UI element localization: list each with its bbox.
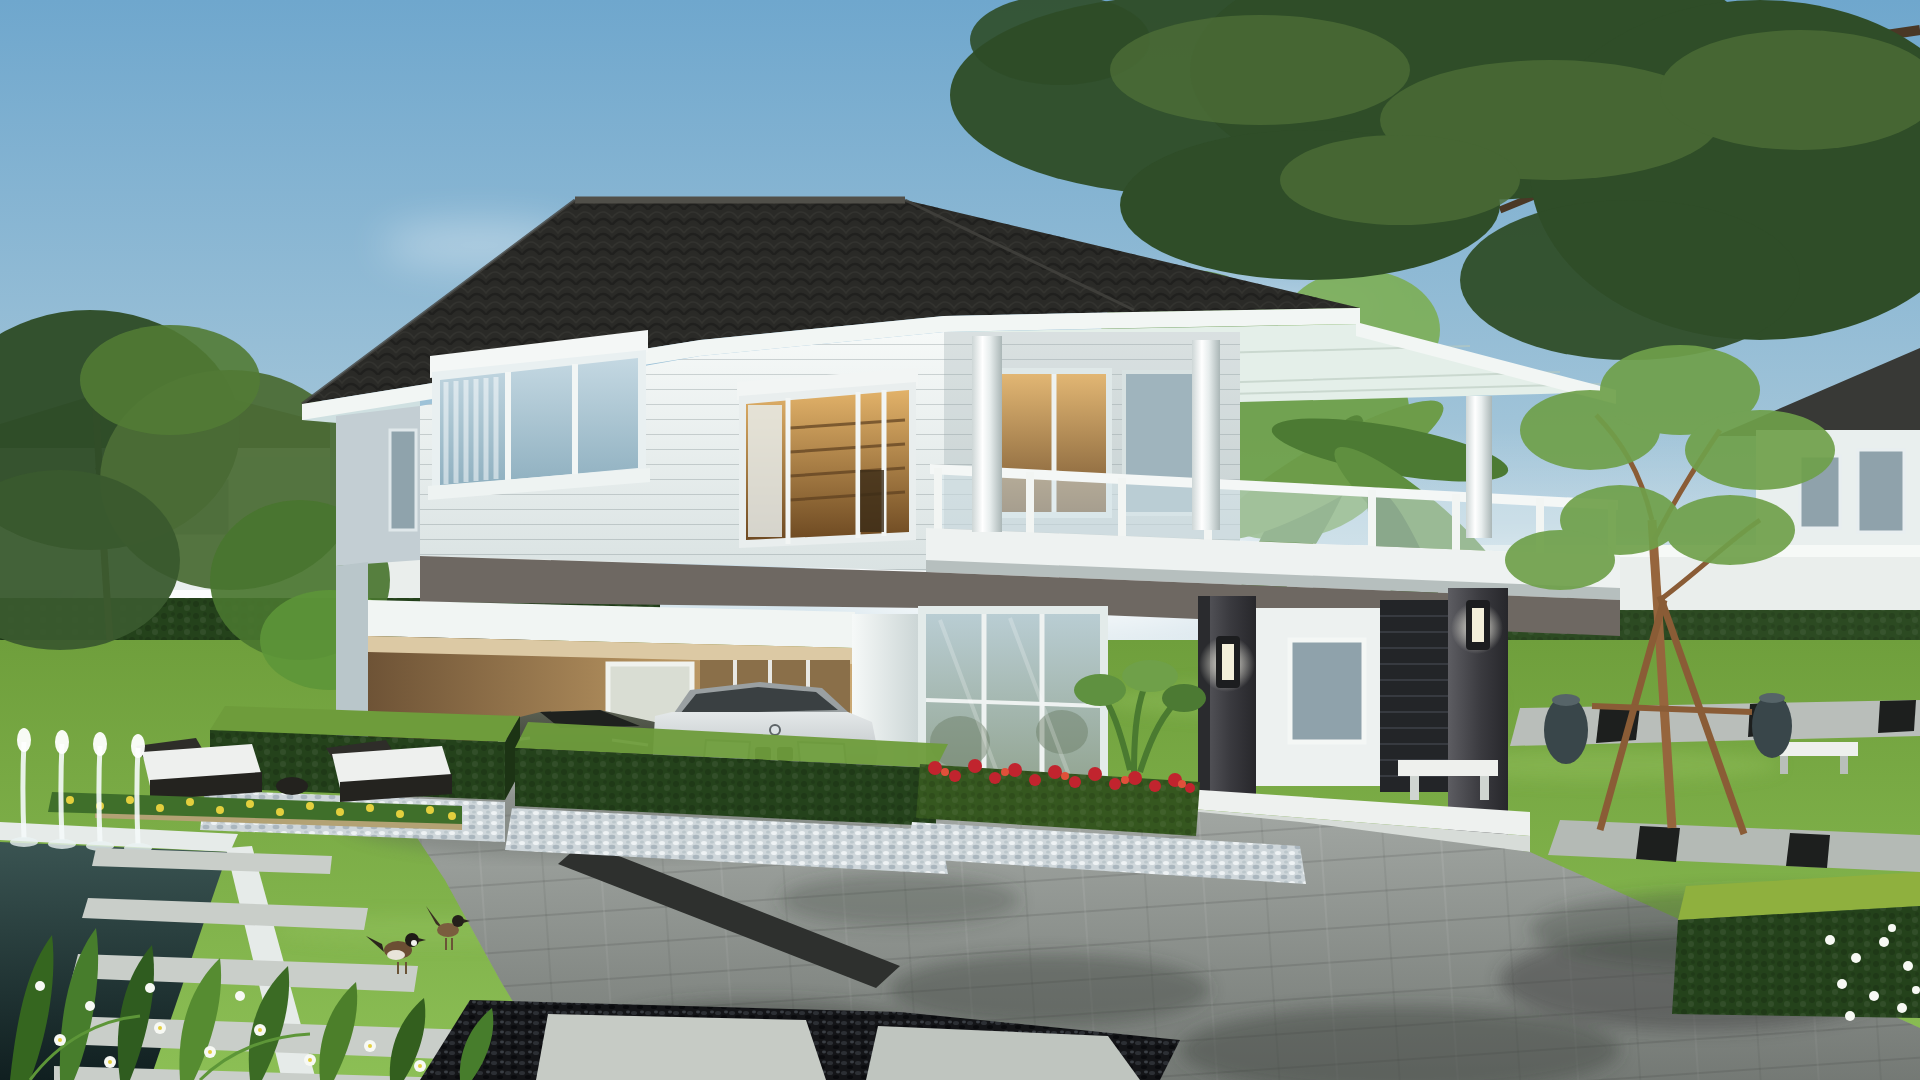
jar-mouth [1759, 693, 1785, 703]
side-table [276, 777, 308, 795]
jar [1752, 694, 1792, 758]
curtain-pane [748, 405, 782, 537]
porch-window [1290, 640, 1364, 742]
round-column [1192, 340, 1220, 530]
hedge-box-texture [1672, 906, 1920, 1018]
scene-canvas [0, 0, 1920, 1080]
jar-mouth [1552, 694, 1580, 706]
round-column [1466, 396, 1492, 538]
window-glass [440, 358, 638, 486]
interior-doorway [860, 470, 884, 532]
side-slit-window [390, 430, 416, 530]
bird-cheek [411, 940, 417, 946]
bird-belly [387, 950, 405, 960]
bench-leg [1780, 756, 1788, 774]
bird-head [452, 915, 464, 927]
jar [1544, 696, 1588, 764]
tree-canopy [80, 325, 260, 435]
corner-window [428, 330, 650, 500]
porch-bench-seat [1398, 760, 1498, 776]
architectural-rendering [0, 0, 1920, 1080]
bench-leg [1840, 756, 1848, 774]
glass-tree-reflection [1036, 710, 1088, 754]
bg-right-window [1858, 450, 1904, 532]
center-window [737, 368, 918, 548]
stone-slab [536, 1014, 826, 1080]
porch-bench-leg [1410, 776, 1419, 800]
lamp-lens [1472, 608, 1484, 642]
round-column [972, 336, 1002, 532]
lamp-lens [1222, 644, 1234, 680]
bright-hedge-box [1672, 872, 1920, 1021]
bmw-roundel [770, 725, 780, 735]
porch-bench-leg [1480, 776, 1489, 800]
